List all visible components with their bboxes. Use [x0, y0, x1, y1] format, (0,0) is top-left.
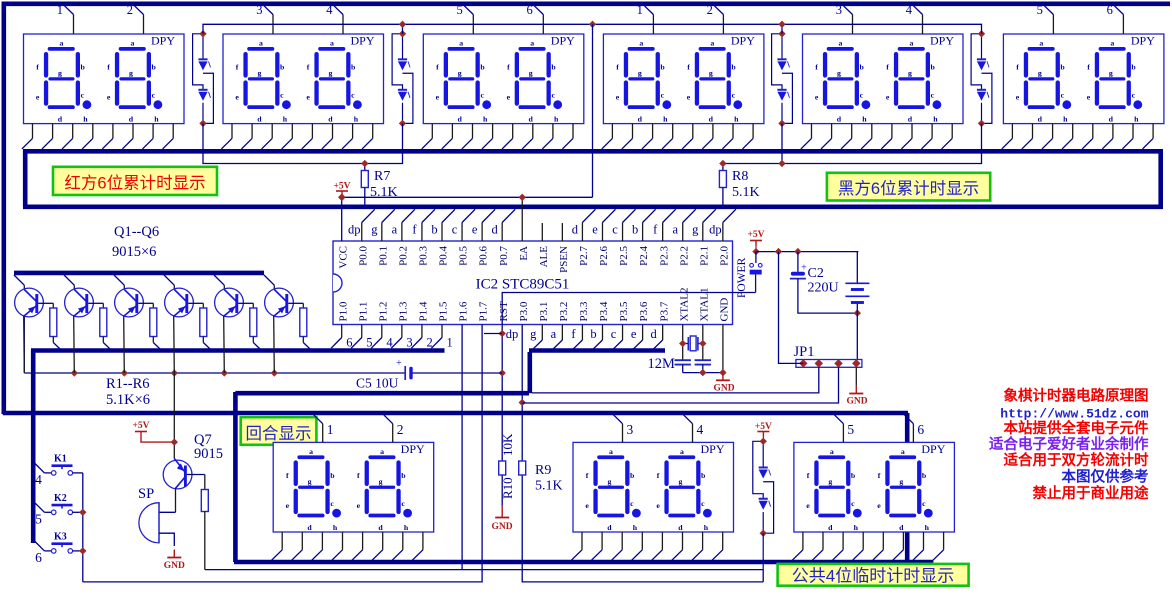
svg-text:P3.3: P3.3 — [578, 301, 590, 321]
svg-text:P3.6: P3.6 — [638, 301, 650, 321]
svg-text:P0.2: P0.2 — [397, 246, 409, 266]
svg-text:适合用于双方轮流计时: 适合用于双方轮流计时 — [1004, 451, 1149, 469]
svg-text:P0.5: P0.5 — [458, 246, 470, 266]
svg-text:5.1K: 5.1K — [370, 185, 398, 200]
svg-text:6: 6 — [35, 550, 42, 565]
svg-text:K2: K2 — [54, 493, 67, 504]
svg-text:3: 3 — [836, 3, 842, 17]
svg-text:红方6位累计时显示: 红方6位累计时显示 — [64, 174, 205, 193]
svg-text:P1.1: P1.1 — [357, 302, 369, 322]
svg-text:P1.0: P1.0 — [337, 301, 349, 321]
svg-text:象棋计时器电路原理图: 象棋计时器电路原理图 — [1004, 387, 1149, 405]
svg-text:a: a — [392, 223, 398, 237]
svg-text:b: b — [590, 327, 596, 341]
svg-text:dp: dp — [506, 327, 519, 341]
svg-text:P1.7: P1.7 — [478, 301, 490, 321]
svg-text:JP1: JP1 — [794, 344, 815, 360]
svg-text:9015×6: 9015×6 — [112, 244, 156, 260]
svg-text:P3.0: P3.0 — [518, 301, 530, 321]
svg-text:g: g — [371, 223, 378, 237]
svg-text:P3.1: P3.1 — [538, 302, 550, 322]
svg-text:d: d — [572, 223, 579, 237]
svg-text:GND: GND — [164, 561, 185, 571]
svg-text:本站提供全套电子元件: 本站提供全套电子元件 — [1004, 419, 1149, 437]
svg-text:6: 6 — [917, 422, 924, 437]
svg-text:GND: GND — [491, 522, 512, 532]
svg-text:4: 4 — [697, 422, 704, 437]
svg-text:+: + — [801, 263, 807, 274]
svg-text:IC2 STC89C51: IC2 STC89C51 — [476, 277, 570, 293]
svg-text:P0.3: P0.3 — [418, 246, 430, 266]
svg-text:Q1--Q6: Q1--Q6 — [114, 224, 159, 240]
svg-text:P2.2: P2.2 — [678, 246, 690, 266]
svg-text:5.1K: 5.1K — [535, 479, 563, 494]
svg-text:GND: GND — [718, 298, 730, 322]
svg-text:P1.5: P1.5 — [438, 301, 450, 321]
svg-text:GND: GND — [713, 384, 734, 394]
svg-text:P2.4: P2.4 — [638, 246, 650, 266]
svg-text:5.1K: 5.1K — [732, 185, 760, 200]
svg-text:RST: RST — [498, 301, 510, 321]
svg-text:P0.7: P0.7 — [498, 246, 510, 266]
svg-text:6: 6 — [527, 3, 533, 17]
svg-text:R1--R6: R1--R6 — [106, 376, 150, 392]
svg-text:P2.7: P2.7 — [578, 246, 590, 266]
svg-text:P2.5: P2.5 — [618, 246, 630, 266]
svg-text:+5V: +5V — [132, 421, 149, 431]
svg-text:a: a — [551, 327, 557, 341]
svg-text:P2.0: P2.0 — [718, 246, 730, 266]
svg-text:e: e — [592, 223, 598, 237]
svg-text:4: 4 — [35, 472, 42, 487]
svg-text:4: 4 — [326, 3, 333, 17]
svg-text:+5V: +5V — [333, 182, 350, 192]
svg-text:适合电子爱好者业余制作: 适合电子爱好者业余制作 — [989, 435, 1149, 453]
svg-text:a: a — [672, 223, 678, 237]
svg-text:2: 2 — [127, 3, 133, 17]
svg-text:P0.4: P0.4 — [438, 246, 450, 266]
svg-text:R8: R8 — [732, 169, 748, 184]
svg-text:d: d — [492, 223, 499, 237]
svg-text:5: 5 — [457, 3, 463, 17]
svg-text:本图仅供参考: 本图仅供参考 — [1062, 468, 1149, 486]
svg-text:公共4位临时计时显示: 公共4位临时计时显示 — [792, 567, 954, 586]
svg-text:P1.4: P1.4 — [418, 301, 430, 321]
svg-text:P0.6: P0.6 — [478, 246, 490, 266]
svg-text:C2: C2 — [808, 266, 824, 281]
svg-text:禁止用于商业用途: 禁止用于商业用途 — [1033, 484, 1149, 502]
svg-text:+5V: +5V — [755, 422, 772, 432]
svg-text:P1.3: P1.3 — [397, 301, 409, 321]
svg-text:3: 3 — [627, 422, 634, 437]
svg-text:dp: dp — [709, 223, 722, 237]
svg-text:P0.0: P0.0 — [357, 246, 369, 266]
svg-text:2: 2 — [397, 422, 404, 437]
svg-text:http://www.51dz.com: http://www.51dz.com — [1000, 407, 1148, 422]
svg-text:b: b — [632, 223, 638, 237]
svg-text:SP: SP — [138, 486, 154, 502]
svg-text:P3.5: P3.5 — [618, 301, 630, 321]
svg-text:10K: 10K — [500, 433, 515, 456]
svg-text:4: 4 — [906, 3, 913, 17]
svg-text:5: 5 — [35, 511, 42, 526]
svg-text:R10: R10 — [500, 477, 515, 499]
svg-text:R7: R7 — [374, 169, 390, 184]
svg-text:12M: 12M — [648, 356, 676, 372]
svg-text:P2.3: P2.3 — [658, 246, 670, 266]
svg-text:1: 1 — [447, 336, 453, 350]
svg-text:b: b — [431, 223, 437, 237]
svg-text:P1.6: P1.6 — [458, 301, 470, 321]
svg-text:3: 3 — [256, 3, 262, 17]
svg-text:5: 5 — [847, 422, 854, 437]
svg-text:1: 1 — [57, 3, 63, 17]
svg-text:PSEN: PSEN — [558, 246, 570, 273]
svg-text:P3.4: P3.4 — [598, 301, 610, 321]
svg-text:K3: K3 — [54, 531, 67, 542]
svg-text:c: c — [612, 223, 618, 237]
svg-text:5.1K×6: 5.1K×6 — [106, 392, 150, 408]
svg-text:P3.2: P3.2 — [558, 302, 570, 322]
svg-text:C5 10U: C5 10U — [356, 376, 399, 391]
svg-text:6: 6 — [1107, 3, 1113, 17]
svg-text:e: e — [472, 223, 478, 237]
svg-text:g: g — [692, 223, 699, 237]
svg-text:GND: GND — [846, 397, 867, 407]
svg-text:c: c — [452, 223, 458, 237]
svg-text:9015: 9015 — [194, 446, 223, 462]
svg-text:2: 2 — [707, 3, 713, 17]
svg-text:P0.1: P0.1 — [377, 246, 389, 266]
svg-text:P2.6: P2.6 — [598, 246, 610, 266]
svg-text:1: 1 — [327, 422, 334, 437]
svg-text:回合显示: 回合显示 — [246, 424, 312, 443]
svg-text:+: + — [396, 358, 402, 369]
svg-text:e: e — [631, 327, 637, 341]
svg-text:K1: K1 — [54, 453, 67, 464]
svg-text:P1.2: P1.2 — [377, 302, 389, 322]
svg-text:黑方6位累计时显示: 黑方6位累计时显示 — [838, 179, 979, 198]
svg-text:P2.1: P2.1 — [698, 246, 710, 266]
svg-text:R9: R9 — [535, 463, 551, 478]
svg-text:EA: EA — [518, 246, 530, 261]
svg-text:VCC: VCC — [337, 246, 349, 269]
svg-text:5: 5 — [1037, 3, 1043, 17]
svg-text:d: d — [651, 327, 658, 341]
svg-text:c: c — [611, 327, 617, 341]
svg-text:+5V: +5V — [747, 230, 764, 240]
svg-text:220U: 220U — [808, 281, 839, 296]
svg-text:g: g — [530, 327, 537, 341]
svg-text:dp: dp — [348, 223, 361, 237]
svg-text:ALE: ALE — [538, 246, 550, 268]
svg-text:1: 1 — [637, 3, 643, 17]
svg-text:POWER: POWER — [736, 257, 748, 298]
svg-text:P3.7: P3.7 — [658, 301, 670, 321]
